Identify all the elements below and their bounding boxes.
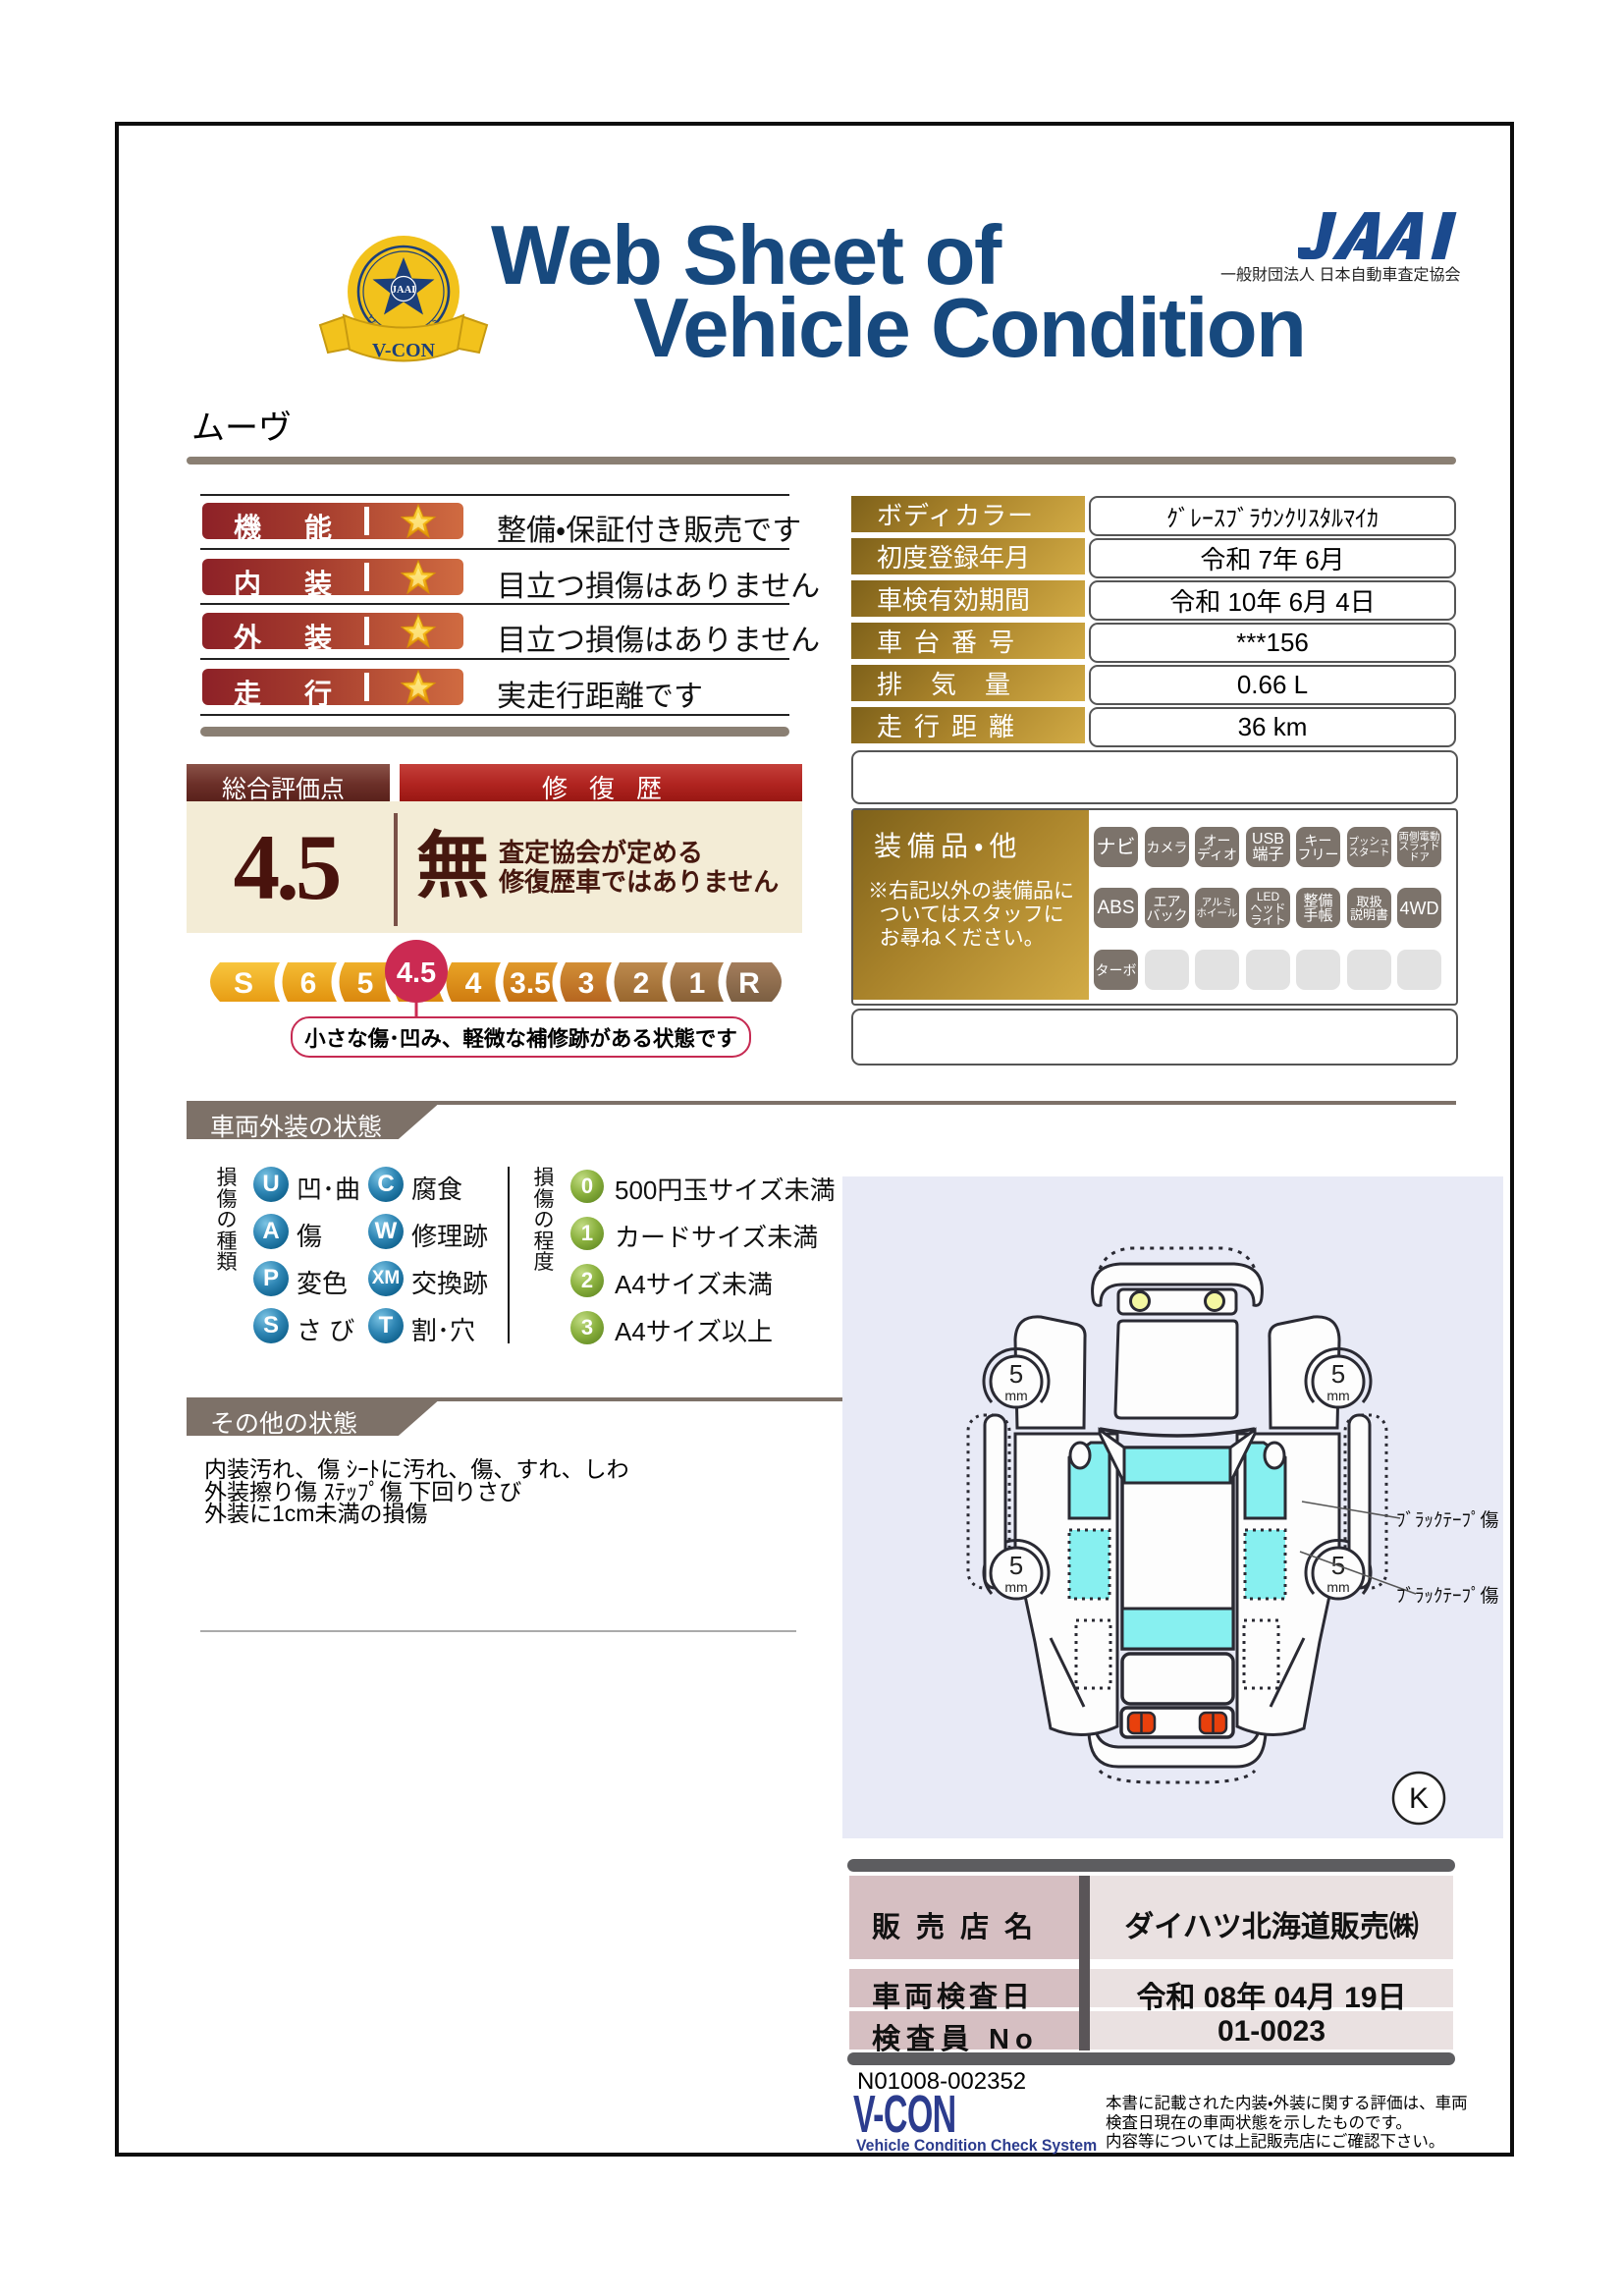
svg-text:mm: mm <box>1004 1579 1027 1595</box>
svg-text:5: 5 <box>1009 1359 1023 1389</box>
svg-text:5: 5 <box>1331 1359 1345 1389</box>
svg-text:3.5: 3.5 <box>510 967 551 1000</box>
svg-text:mm: mm <box>1326 1579 1349 1595</box>
svg-text:6: 6 <box>300 967 317 1000</box>
svg-text:S: S <box>234 967 253 1000</box>
svg-text:mm: mm <box>1326 1388 1349 1403</box>
svg-text:2: 2 <box>633 967 650 1000</box>
svg-text:5: 5 <box>357 967 374 1000</box>
svg-text:R: R <box>738 967 760 1000</box>
svg-text:ﾌﾞﾗｯｸﾃｰﾌﾟ傷: ﾌﾞﾗｯｸﾃｰﾌﾟ傷 <box>1396 1585 1499 1607</box>
svg-text:V-CON: V-CON <box>372 340 436 361</box>
svg-text:4: 4 <box>465 967 482 1000</box>
svg-text:5: 5 <box>1009 1551 1023 1580</box>
svg-text:3: 3 <box>578 967 595 1000</box>
svg-text:JAAI: JAAI <box>392 285 416 296</box>
svg-text:4.5: 4.5 <box>397 957 436 989</box>
svg-text:ﾌﾞﾗｯｸﾃｰﾌﾟ傷: ﾌﾞﾗｯｸﾃｰﾌﾟ傷 <box>1396 1509 1499 1531</box>
svg-text:mm: mm <box>1004 1388 1027 1403</box>
svg-text:K: K <box>1409 1782 1429 1815</box>
svg-text:1: 1 <box>689 967 706 1000</box>
